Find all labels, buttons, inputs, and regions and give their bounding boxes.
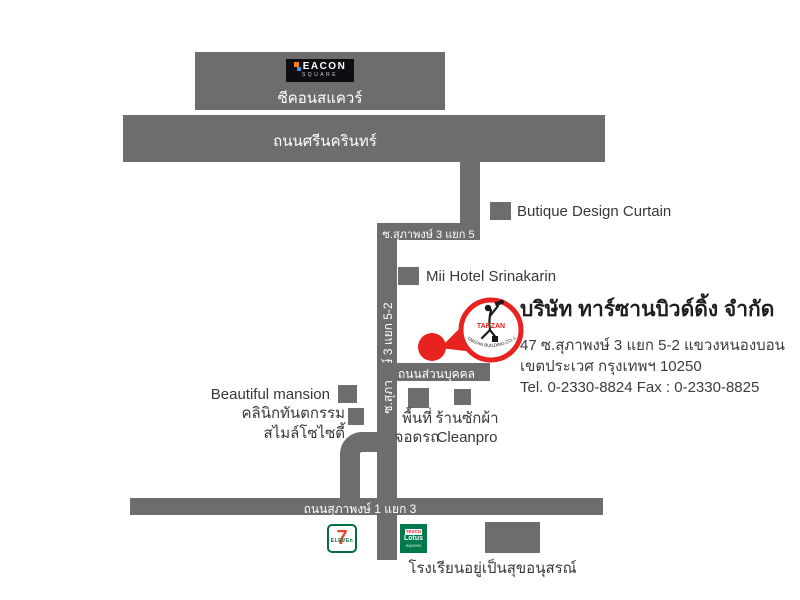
parking-box xyxy=(408,388,429,408)
company-address-line2: เขตประเวศ กรุงเทพฯ 10250 xyxy=(520,356,785,377)
company-info: บริษัท ทาร์ซานบิวด์ดิ้ง จำกัด 47 ซ.สุภาพ… xyxy=(520,293,785,398)
mii-hotel-box xyxy=(398,267,419,285)
laundry-box xyxy=(454,389,471,405)
tesco-line2: Lotus xyxy=(404,535,423,543)
tesco-lotus-icon: TESCO Lotus express xyxy=(400,524,427,553)
company-address-line1: 47 ซ.สุภาพงษ์ 3 แยก 5-2 แขวงหนองบอน xyxy=(520,335,785,356)
beautiful-mansion-box xyxy=(338,385,357,403)
seacon-logo-text: EACON xyxy=(303,62,347,72)
seven-eleven-text: ELEVEn xyxy=(329,538,355,544)
seacon-logo-line2: SQUARE xyxy=(302,72,338,79)
seacon-square-logo: EACON SQUARE xyxy=(286,59,354,82)
tarzan-logo-text: TARZAN xyxy=(477,323,505,330)
srinakarin-road-label: ถนนศรีนครินทร์ xyxy=(240,129,410,153)
dental-clinic-line1: คลินิกทันตกรรม xyxy=(241,405,345,422)
school-box xyxy=(485,522,540,553)
dental-clinic-label: คลินิกทันตกรรม สไมล์โซไซตี้ xyxy=(228,404,345,444)
seacon-thai-label: ซีคอนสแควร์ xyxy=(278,86,363,110)
seacon-square-block: EACON SQUARE ซีคอนสแควร์ xyxy=(195,52,445,110)
butique-box xyxy=(490,202,511,220)
direction-map: EACON SQUARE ซีคอนสแควร์ ถนนศรีนครินทร์ … xyxy=(0,0,800,600)
seacon-s-icon xyxy=(294,62,302,72)
tesco-line3: express xyxy=(406,543,422,548)
seacon-logo-line1: EACON xyxy=(294,62,347,72)
seven-eleven-icon: 7 ELEVEn xyxy=(327,524,357,553)
parking-line1: พื้นที่ xyxy=(402,410,432,427)
tarzan-figure-head xyxy=(485,305,491,311)
tarzan-figure-toolbox xyxy=(492,336,498,342)
soi1-road-label: ถนนสุภาพงษ์ 1 แยก 3 xyxy=(285,500,435,519)
dental-clinic-box xyxy=(348,408,364,425)
mii-hotel-label: Mii Hotel Srinakarin xyxy=(426,268,556,285)
laundry-line2: Cleanpro xyxy=(437,429,498,446)
company-name: บริษัท ทาร์ซานบิวด์ดิ้ง จำกัด xyxy=(520,293,785,326)
parking-line2: จอดรถ xyxy=(395,429,440,446)
school-label: โรงเรียนอยู่เป็นสุขอนุสรณ์ xyxy=(400,556,585,580)
beautiful-mansion-label: Beautiful mansion xyxy=(200,386,330,403)
dental-clinic-line2: สไมล์โซไซตี้ xyxy=(264,425,345,442)
laundry-label: ร้านซักผ้า Cleanpro xyxy=(434,409,500,447)
company-contact: Tel. 0-2330-8824 Fax : 0-2330-8825 xyxy=(520,377,785,398)
laundry-line1: ร้านซักผ้า xyxy=(435,410,498,427)
butique-label: Butique Design Curtain xyxy=(517,203,671,220)
